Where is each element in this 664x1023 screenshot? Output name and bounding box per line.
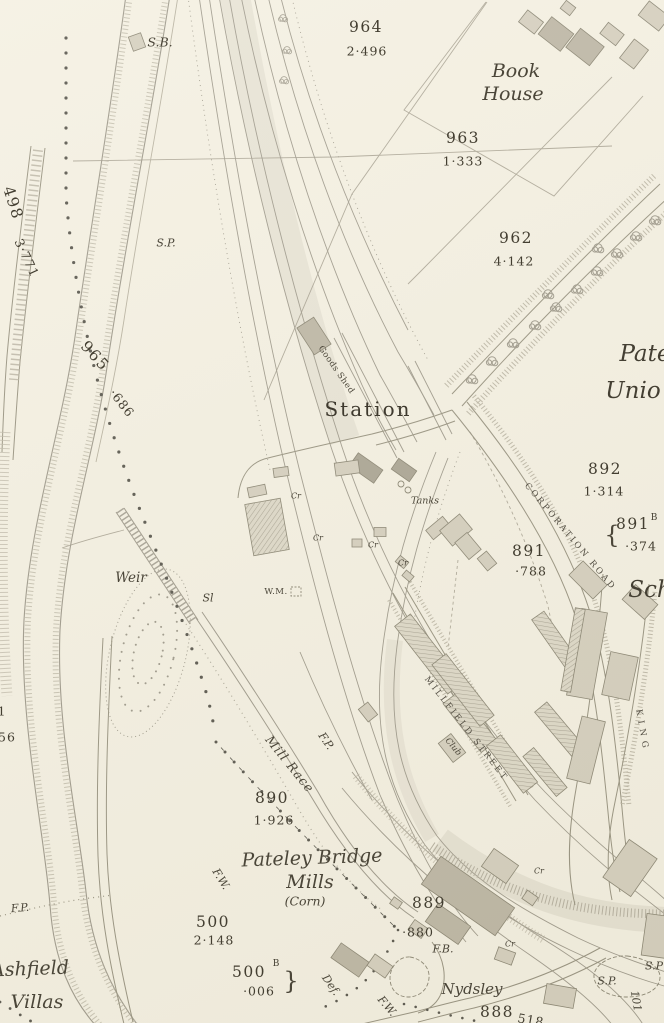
tank-symbol <box>405 487 411 493</box>
slope-hatching <box>2 432 7 696</box>
tree-symbols <box>279 15 661 384</box>
tree-enclosure <box>594 956 660 997</box>
weighing-machine-box <box>291 587 301 596</box>
map-canvas: S.B.9642·496BookHouse9631·3339624·142498… <box>0 0 664 1023</box>
tree-enclosure <box>390 957 429 997</box>
map-drawing <box>0 0 664 1023</box>
island-osier-bed <box>90 560 205 745</box>
warehouse-building <box>245 498 289 555</box>
tank-symbol <box>398 481 404 487</box>
weir-structure <box>116 508 198 624</box>
station-platforms <box>334 333 452 458</box>
river-nidd <box>23 0 170 1023</box>
club-building <box>438 734 465 763</box>
signal-box-building <box>128 33 145 52</box>
buildings <box>128 0 664 1008</box>
